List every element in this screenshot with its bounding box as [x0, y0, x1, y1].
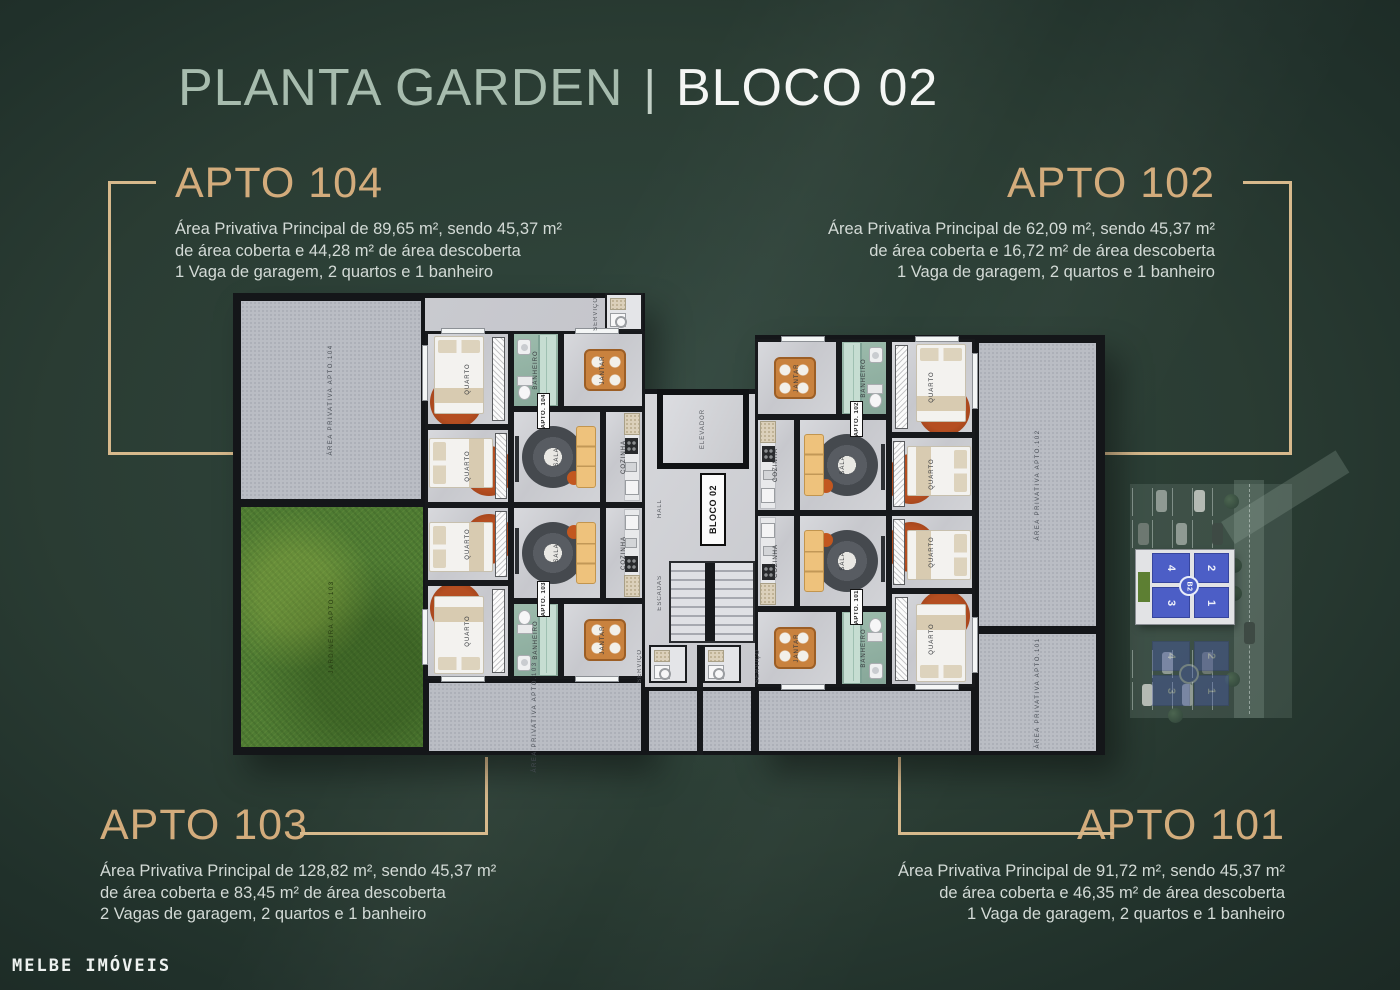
terrace-apto104: ÁREA PRIVATIVA APTO.104 — [237, 297, 425, 503]
toilet-icon — [517, 376, 531, 400]
counter-granite-icon — [760, 583, 776, 605]
room-cozinha: COZINHA — [755, 417, 797, 513]
bed-icon — [434, 336, 484, 414]
area-label-apto102: ÁREA PRIVATIVA APTO.102 — [1035, 429, 1041, 540]
room-quarto: QUARTO — [425, 427, 511, 505]
service-room-104 — [605, 293, 643, 331]
apto-102-title: APTO 102 — [828, 162, 1215, 205]
room-label-cozinha: COZINHA — [621, 440, 627, 474]
room-banheiro: BANHEIRO — [511, 331, 561, 409]
sink-icon — [869, 347, 883, 363]
car-icon — [1212, 523, 1223, 545]
bloco-02-tag: BLOCO 02 — [700, 473, 726, 546]
toilet-icon — [517, 610, 531, 634]
bed-icon — [429, 522, 493, 572]
terrace-strip-apto103: ÁREA PRIVATIVA APTO.103 — [425, 679, 645, 755]
room-sala: SALA — [511, 409, 603, 505]
room-label-banheiro: BANHEIRO — [533, 620, 539, 659]
apto-101-title: APTO 101 — [898, 804, 1285, 847]
room-label-banheiro: BANHEIRO — [533, 350, 539, 389]
room-label-quarto: QUARTO — [929, 536, 935, 567]
fridge-icon — [625, 480, 639, 495]
window — [972, 617, 978, 673]
apto-103-line3: 2 Vagas de garagem, 2 quartos e 1 banhei… — [100, 904, 496, 926]
bed-icon — [907, 446, 971, 496]
brand-watermark: MELBE IMÓVEIS — [12, 956, 171, 976]
bloco-02-tag-label: BLOCO 02 — [708, 485, 718, 534]
room-label-quarto: QUARTO — [465, 450, 471, 481]
living-rug-icon — [522, 522, 584, 584]
room-quarto: QUARTO — [425, 505, 511, 583]
bracket-101-horizontal — [901, 832, 1113, 835]
room-quarto: QUARTO — [889, 513, 975, 591]
elevator-label: ELEVADOR — [700, 409, 706, 449]
callout-apto-102: APTO 102 Área Privativa Principal de 62,… — [828, 162, 1215, 284]
callout-apto-103: APTO 103 Área Privativa Principal de 128… — [100, 804, 496, 926]
parking-row — [1132, 488, 1232, 516]
unit-tag-103: APTO. 103 — [537, 581, 550, 617]
title-separator: | — [643, 61, 655, 116]
site-unit-2: 2 — [1194, 553, 1229, 583]
fridge-icon — [761, 523, 775, 538]
window — [972, 353, 978, 409]
tree-icon — [1224, 494, 1239, 509]
apartment-unit-101: QUARTOBANHEIROJANTARCOZINHASALAQUARTOAPT… — [755, 513, 975, 687]
window — [422, 609, 428, 665]
unit-tag-label: APTO. 104 — [541, 394, 547, 428]
apto-104-title: APTO 104 — [175, 162, 562, 205]
bracket-103-horizontal — [300, 832, 488, 835]
sink-icon — [869, 663, 883, 679]
bed-icon — [916, 344, 966, 422]
room-label-quarto: QUARTO — [929, 371, 935, 402]
site-unit-2-faded: 2 — [1194, 641, 1229, 671]
apto-104-line3: 1 Vaga de garagem, 2 quartos e 1 banheir… — [175, 262, 562, 284]
room-label-sala: SALA — [840, 455, 846, 474]
room-jantar: JANTAR — [561, 331, 645, 409]
closet-icon — [893, 519, 905, 585]
room-banheiro: BANHEIRO — [839, 609, 889, 687]
room-label-cozinha: COZINHA — [621, 536, 627, 570]
sofa-icon — [576, 426, 596, 488]
closet-icon — [495, 511, 507, 577]
unit-tag-102: APTO. 102 — [850, 401, 863, 437]
sink-icon — [517, 655, 531, 671]
car-icon — [1176, 523, 1187, 545]
sofa-icon — [804, 434, 824, 496]
apto-103-line2: de área coberta e 83,45 m² de área desco… — [100, 883, 496, 905]
living-rug-icon — [522, 426, 584, 488]
bracket-103-vertical — [485, 757, 488, 835]
window — [781, 336, 825, 342]
car-icon — [1138, 523, 1149, 545]
room-label-banheiro: BANHEIRO — [861, 628, 867, 667]
apartment-unit-102: QUARTOBANHEIROJANTARCOZINHASALAQUARTOAPT… — [755, 339, 975, 513]
sofa-icon — [576, 522, 596, 584]
room-quarto: QUARTO — [425, 331, 511, 427]
bed-icon — [434, 596, 484, 674]
apto-101-line2: de área coberta e 46,35 m² de área desco… — [898, 883, 1285, 905]
apto-103-title: APTO 103 — [100, 804, 496, 847]
bloco2-badge-label: B2 — [1185, 581, 1192, 591]
living-rug-icon — [816, 530, 878, 592]
bracket-104-vertical — [108, 181, 111, 455]
closet-icon — [893, 441, 905, 507]
bracket-102-top — [1243, 181, 1292, 184]
room-cozinha: COZINHA — [603, 505, 645, 601]
garden-label-apto103: JARDINEIRA APTO.103 — [329, 580, 335, 673]
site-building-bloco1: 4 2 3 1 — [1136, 638, 1234, 712]
closet-icon — [492, 589, 505, 673]
room-label-quarto: QUARTO — [465, 528, 471, 559]
room-label-jantar: JANTAR — [600, 356, 606, 385]
apartment-unit-104: QUARTOBANHEIROJANTARCOZINHASALAQUARTOAPT… — [425, 331, 645, 505]
apto-101-line3: 1 Vaga de garagem, 2 quartos e 1 banheir… — [898, 904, 1285, 926]
apto-104-line2: de área coberta e 44,28 m² de área desco… — [175, 241, 562, 263]
room-label-quarto: QUARTO — [465, 363, 471, 394]
unit-tag-104: APTO. 104 — [537, 393, 550, 429]
room-banheiro: BANHEIRO — [839, 339, 889, 417]
counter-granite-icon — [624, 575, 640, 597]
hall-label: HALL — [657, 499, 663, 518]
site-unit-2-faded-label: 2 — [1206, 653, 1218, 659]
road-centerline — [1249, 484, 1250, 714]
room-quarto: QUARTO — [889, 339, 975, 435]
site-unit-1-faded-label: 1 — [1206, 687, 1218, 693]
car-icon — [1194, 490, 1205, 512]
sofa-icon — [804, 530, 824, 592]
room-cozinha: COZINHA — [603, 409, 645, 505]
apto-102-line3: 1 Vaga de garagem, 2 quartos e 1 banheir… — [828, 262, 1215, 284]
site-unit-1-label: 1 — [1206, 599, 1218, 605]
room-jantar: JANTAR — [755, 339, 839, 417]
car-icon — [1244, 622, 1255, 644]
room-sala: SALA — [797, 417, 889, 513]
room-cozinha: COZINHA — [755, 513, 797, 609]
callout-apto-104: APTO 104 Área Privativa Principal de 89,… — [175, 162, 562, 284]
service-room-101 — [703, 645, 741, 683]
window — [422, 345, 428, 401]
window — [915, 336, 959, 342]
service-label-101: SERVIÇO — [755, 649, 761, 683]
washer-icon — [708, 665, 724, 679]
closet-icon — [495, 433, 507, 499]
site-unit-2-label: 2 — [1206, 565, 1218, 571]
closet-icon — [895, 597, 908, 681]
room-jantar: JANTAR — [561, 601, 645, 679]
tv-console-icon — [881, 536, 885, 582]
bracket-101-vertical — [898, 757, 901, 835]
window — [441, 328, 485, 334]
bed-icon — [907, 530, 971, 580]
room-label-sala: SALA — [840, 551, 846, 570]
apto-102-line2: de área coberta e 16,72 m² de área desco… — [828, 241, 1215, 263]
room-label-jantar: JANTAR — [600, 626, 606, 655]
room-jantar: JANTAR — [755, 609, 839, 687]
toilet-icon — [869, 384, 883, 408]
room-quarto: QUARTO — [889, 435, 975, 513]
callout-apto-101: APTO 101 Área Privativa Principal de 91,… — [898, 804, 1285, 926]
bracket-104-bottom — [108, 452, 233, 455]
car-icon — [1156, 490, 1167, 512]
site-garden — [1138, 572, 1150, 602]
service-label-103: SERVIÇO — [637, 649, 643, 683]
laundry-sink-icon — [654, 650, 670, 662]
tv-console-icon — [515, 436, 519, 482]
floor-plan: ÁREA PRIVATIVA APTO.104JARDINEIRA APTO.1… — [233, 293, 1105, 760]
terrace-strip-right — [755, 687, 975, 755]
terrace-apto102: ÁREA PRIVATIVA APTO.102 — [975, 339, 1100, 630]
toilet-icon — [869, 618, 883, 642]
window — [781, 684, 825, 690]
window — [575, 676, 619, 682]
site-unit-3-faded-label: 3 — [1165, 687, 1177, 693]
unit-tag-101: APTO. 101 — [850, 589, 863, 625]
window — [915, 684, 959, 690]
fridge-icon — [761, 488, 775, 503]
counter-granite-icon — [624, 413, 640, 435]
stairs-label: ESCADAS — [657, 575, 663, 611]
page-title: PLANTA GARDEN | BLOCO 02 — [178, 58, 938, 118]
service-label-104: SERVIÇO — [593, 297, 599, 331]
bracket-102-bottom — [1105, 452, 1292, 455]
laundry-sink-icon — [708, 650, 724, 662]
area-label-apto101: ÁREA PRIVATIVA APTO.101 — [1035, 637, 1041, 748]
fridge-icon — [625, 515, 639, 530]
site-unit-3-label: 3 — [1165, 599, 1177, 605]
site-unit-1-faded: 1 — [1194, 675, 1229, 706]
apto-102-line1: Área Privativa Principal de 62,09 m², se… — [828, 219, 1215, 241]
site-unit-4-label: 4 — [1165, 565, 1177, 571]
room-quarto: QUARTO — [425, 583, 511, 679]
room-label-quarto: QUARTO — [929, 458, 935, 489]
site-building-bloco2: 4 2 3 1 B2 — [1136, 550, 1234, 624]
apto-104-line1: Área Privativa Principal de 89,65 m², se… — [175, 219, 562, 241]
apto-101-line1: Área Privativa Principal de 91,72 m², se… — [898, 861, 1285, 883]
area-label-apto103: ÁREA PRIVATIVA APTO.103 — [532, 661, 538, 772]
bed-icon — [429, 438, 493, 488]
stairs-divider — [705, 563, 715, 641]
title-planta-garden: PLANTA GARDEN — [178, 58, 623, 118]
sink-icon — [517, 339, 531, 355]
bed-icon — [916, 604, 966, 682]
unit-tag-label: APTO. 103 — [541, 582, 547, 616]
room-label-jantar: JANTAR — [794, 634, 800, 663]
room-label-jantar: JANTAR — [794, 364, 800, 393]
room-label-quarto: QUARTO — [465, 615, 471, 646]
unit-tag-label: APTO. 102 — [854, 402, 860, 436]
washer-icon — [654, 665, 670, 679]
bloco1-badge — [1179, 664, 1199, 684]
laundry-sink-icon — [610, 298, 626, 310]
room-quarto: QUARTO — [889, 591, 975, 687]
bloco2-badge: B2 — [1179, 576, 1199, 596]
unit-tag-label: APTO. 101 — [854, 590, 860, 624]
room-label-sala: SALA — [554, 543, 560, 562]
living-rug-icon — [816, 434, 878, 496]
room-sala: SALA — [511, 505, 603, 601]
title-bloco-02: BLOCO 02 — [676, 58, 938, 118]
room-label-banheiro: BANHEIRO — [861, 358, 867, 397]
bracket-104-top — [108, 181, 156, 184]
window — [441, 676, 485, 682]
elevator: ELEVADOR — [657, 389, 749, 469]
garden-apto103: JARDINEIRA APTO.103 — [237, 503, 427, 751]
service-divider-wall — [697, 645, 703, 755]
bracket-102-vertical — [1289, 181, 1292, 455]
apartment-unit-103: QUARTOBANHEIROJANTARCOZINHASALAQUARTOAPT… — [425, 505, 645, 679]
closet-icon — [492, 337, 505, 421]
area-label-apto104: ÁREA PRIVATIVA APTO.104 — [328, 344, 334, 455]
room-sala: SALA — [797, 513, 889, 609]
counter-granite-icon — [760, 421, 776, 443]
site-unit-1: 1 — [1194, 587, 1229, 618]
apto-103-line1: Área Privativa Principal de 128,82 m², s… — [100, 861, 496, 883]
terrace-apto101: ÁREA PRIVATIVA APTO.101 — [975, 630, 1100, 755]
room-label-cozinha: COZINHA — [773, 544, 779, 578]
service-room-103 — [649, 645, 687, 683]
room-label-quarto: QUARTO — [929, 623, 935, 654]
tv-console-icon — [515, 528, 519, 574]
room-label-cozinha: COZINHA — [773, 448, 779, 482]
closet-icon — [895, 345, 908, 429]
site-unit-4-faded-label: 4 — [1165, 653, 1177, 659]
tv-console-icon — [881, 444, 885, 490]
site-plan-inset: 4 2 3 1 B2 4 2 3 1 — [1130, 480, 1340, 725]
washer-icon — [610, 313, 626, 327]
room-label-sala: SALA — [554, 447, 560, 466]
stairs — [669, 561, 755, 643]
